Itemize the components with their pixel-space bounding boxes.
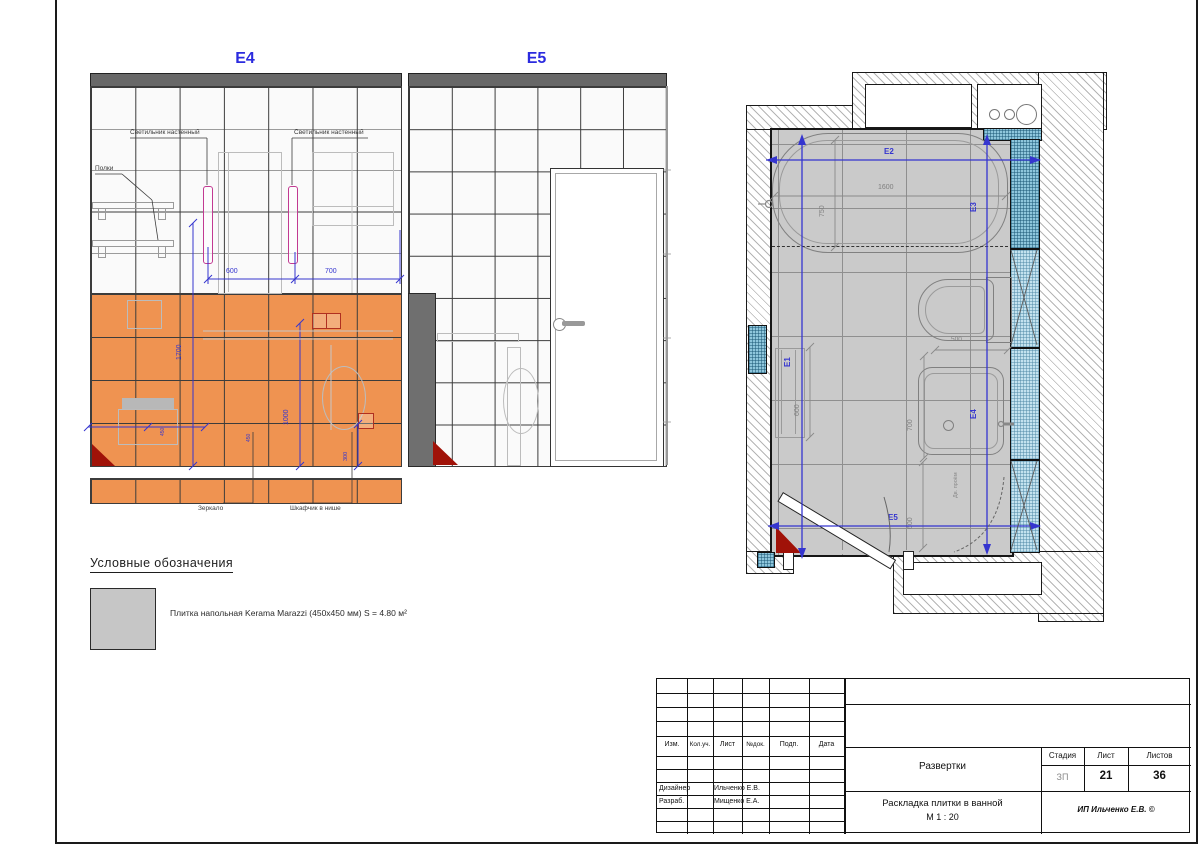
e4-dim-lines [84,219,404,470]
tb-hline-right [844,747,1191,748]
tb-sheets-value: 36 [1128,770,1191,782]
tb-stage-header: Стадия [1041,751,1084,760]
tb-drawing-title: Раскладка плитки в ванной [844,798,1041,809]
tb-vline-main [844,679,846,834]
tb-row-designer-role: Дизайнер [659,785,713,792]
plan-marker-lines [766,137,1040,556]
tb-hline-right [1041,765,1191,766]
tb-hline [657,707,844,708]
tb-hline [657,808,844,809]
tb-row-razrab-name: Мищенко Е.А. [714,798,769,805]
tb-sheets-header: Листов [1128,751,1191,760]
tb-hline [657,795,844,796]
tb-company: ИП Ильченко Е.В. © [1041,805,1191,814]
tb-stage-value: ЗП [1041,772,1084,782]
tb-hline-right [844,704,1191,705]
tb-col-izm: Изм. [657,741,687,748]
plan-dim-lines [770,136,1012,552]
tb-hline [657,721,844,722]
e5-trim-ticks [663,170,671,422]
plan-door-arcs [884,477,1004,552]
tb-col-podp: Подп. [769,741,809,748]
legend-swatch-floor-tile [90,588,156,650]
plan-niche-x-marks [1011,250,1037,550]
title-block: Изм. Кол.уч. Лист №док. Подп. Дата Дизай… [656,678,1190,833]
tb-hline [657,756,844,757]
e4-trim-lines [203,152,393,430]
tb-vline-right [1041,747,1042,834]
tb-col-data: Дата [809,741,844,748]
tb-row-designer-name: Ильченко Е.В. [714,785,769,792]
tb-hline [657,693,844,694]
plan-marker-arrows [766,134,1041,559]
tb-hline-right [844,791,1191,792]
tb-doc-type: Развертки [844,761,1041,772]
tb-col-ndok: №док. [742,741,769,748]
tb-hline [657,821,844,822]
tb-hline [657,736,844,737]
tb-col-koluch: Кол.уч. [687,741,713,748]
tb-sheet-value: 21 [1084,770,1128,782]
e4-leader-lines [95,138,368,503]
tb-col-list: Лист [713,741,742,748]
legend-title: Условные обозначения [90,556,233,573]
tb-hline [657,782,844,783]
legend-item-floor-tile: Плитка напольная Kerama Marazzi (450x450… [170,608,407,618]
tb-hline [657,769,844,770]
plan-faucet-symbols [758,201,1014,427]
tb-sheet-header: Лист [1084,751,1128,760]
tb-drawing-scale: М 1 : 20 [844,812,1041,822]
drawing-sheet: E4 Светильник настенный Светильник насте… [0,0,1200,849]
tb-row-razrab-role: Разраб. [659,798,713,805]
